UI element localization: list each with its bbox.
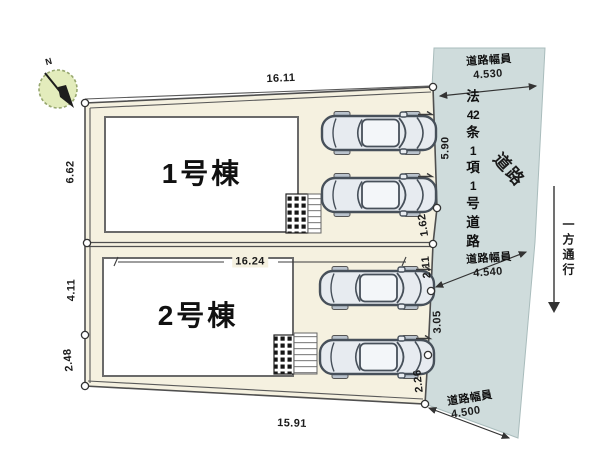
car-icon (322, 112, 436, 155)
dimension-bottom-label: 15.91 (277, 418, 307, 430)
dimension-middle-label: 16.24 (232, 257, 268, 268)
road-classification-label: 法 42 条 1 項 1 号 道 路 (461, 88, 485, 252)
dimension-left-label-3: 2.48 (62, 348, 75, 372)
road-width-top-value: 4.530 (473, 68, 503, 81)
one-way-arrow-icon (548, 186, 560, 313)
dimension-right-label-3: 2.11 (421, 255, 434, 278)
porch-building-1 (308, 194, 321, 233)
road-classification-char: 法 (466, 88, 480, 107)
stairs-icon-building-2 (274, 335, 294, 374)
compass-icon (39, 70, 77, 108)
car-icon (322, 174, 436, 217)
dimension-right-label-4: 3.05 (432, 310, 444, 333)
road-width-mid-value: 4.540 (473, 266, 503, 279)
dimension-left-label-2: 4.11 (67, 279, 78, 301)
road-classification-char: 道 (466, 214, 480, 233)
site-plan-canvas (0, 0, 600, 451)
stairs-icon-building-1 (286, 194, 308, 233)
building-1-label: 1号棟 (162, 160, 243, 188)
dimension-right-label-5: 2.26 (412, 369, 425, 393)
road-classification-char: 条 (466, 124, 480, 143)
porch-building-2 (294, 333, 317, 374)
one-way-label: 一方通行 (562, 218, 574, 278)
dimension-right-label-1: 5.90 (441, 136, 452, 159)
road-classification-char: 1 (470, 143, 476, 160)
car-icon (320, 267, 434, 310)
building-2-label: 2号棟 (158, 302, 239, 330)
road-classification-char: 項 (466, 159, 480, 178)
road-classification-char: 号 (466, 195, 480, 214)
dimension-left-label-1: 6.62 (66, 160, 77, 183)
site-plan: N 1号棟 2号棟 16.11 16.24 15.91 6.62 4.11 2.… (0, 0, 600, 451)
road-classification-char: 路 (466, 233, 480, 252)
dimension-top-label: 16.11 (266, 73, 295, 85)
road-classification-char: 42 (467, 107, 479, 124)
road-classification-char: 1 (470, 178, 476, 195)
road-area (425, 48, 545, 438)
